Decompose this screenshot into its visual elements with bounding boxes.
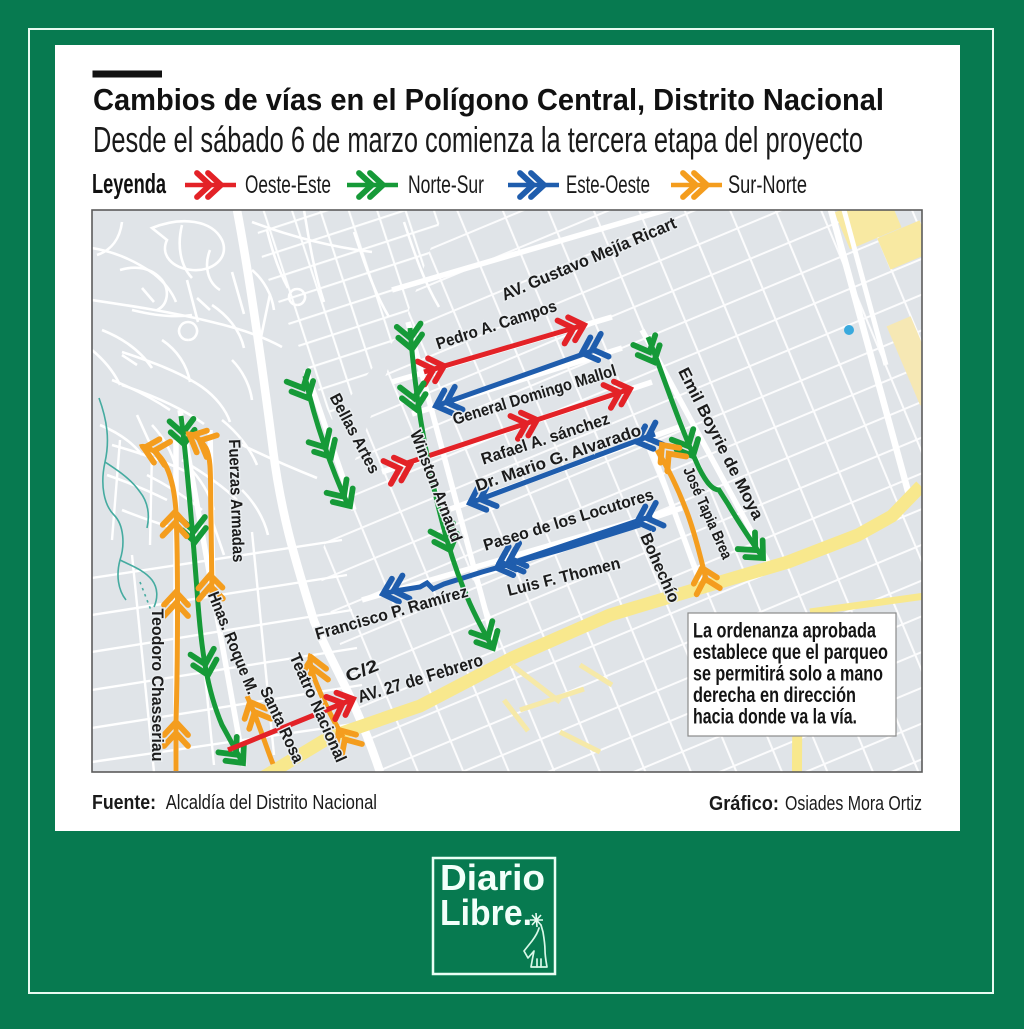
svg-text:Oeste-Este: Oeste-Este — [245, 171, 331, 199]
svg-text:Leyenda: Leyenda — [92, 168, 166, 199]
svg-text:La ordenanza aprobada: La ordenanza aprobada — [693, 620, 876, 643]
svg-text:Libre.: Libre. — [440, 892, 532, 933]
svg-text:Teodoro Chasseriau: Teodoro Chasseriau — [148, 609, 166, 762]
svg-text:derecha en dirección: derecha en dirección — [693, 684, 856, 707]
svg-text:Este-Oeste: Este-Oeste — [566, 171, 650, 199]
svg-text:Norte-Sur: Norte-Sur — [408, 171, 484, 199]
svg-text:establece que el parqueo: establece que el parqueo — [693, 641, 888, 664]
svg-text:Gráfico:Osiades Mora Ortiz: Gráfico:Osiades Mora Ortiz — [709, 793, 922, 815]
svg-text:hacia donde va la vía.: hacia donde va la vía. — [693, 706, 857, 729]
svg-text:Fuente: Alcaldía del Distrito: Fuente: Alcaldía del Distrito Nacional — [92, 792, 377, 814]
svg-text:Sur-Norte: Sur-Norte — [728, 171, 807, 199]
svg-text:Cambios de vías en el Polígono: Cambios de vías en el Polígono Central, … — [93, 82, 884, 117]
svg-text:Desde el sábado 6 de marzo com: Desde el sábado 6 de marzo comienza la t… — [93, 119, 863, 160]
svg-text:se permitirá solo a mano: se permitirá solo a mano — [693, 663, 883, 686]
